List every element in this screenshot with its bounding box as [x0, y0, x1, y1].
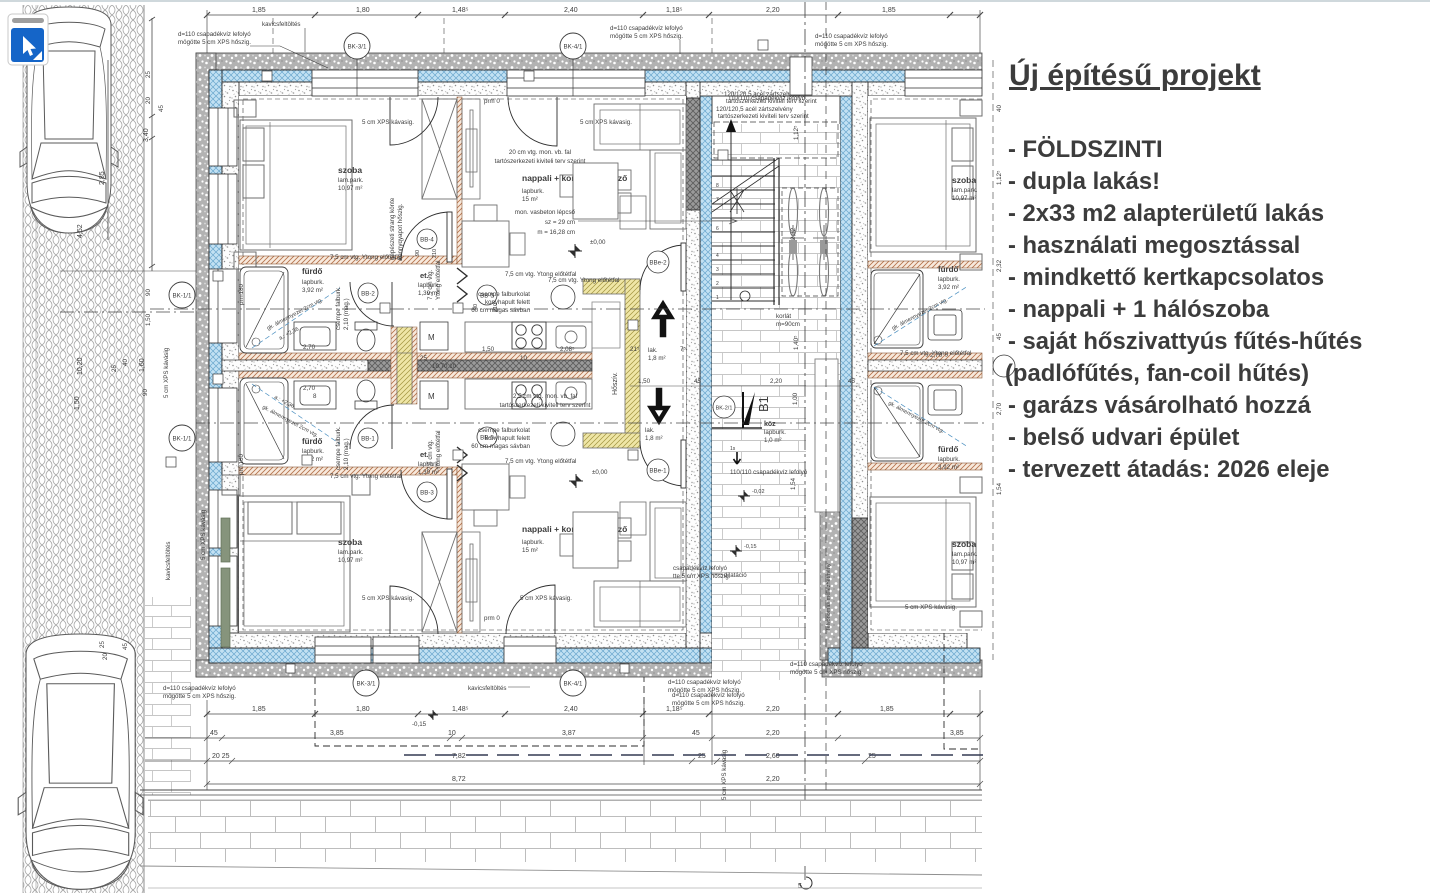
svg-text:fürdő: fürdő	[302, 267, 323, 276]
svg-text:1,60: 1,60	[139, 358, 146, 372]
svg-text:B1: B1	[756, 396, 771, 412]
svg-text:45: 45	[210, 730, 218, 737]
svg-text:6: 6	[716, 226, 719, 232]
svg-text:1,54: 1,54	[996, 482, 1003, 495]
svg-text:4: 4	[716, 253, 719, 259]
svg-text:kavicsfeltöltés: kavicsfeltöltés	[262, 21, 301, 28]
svg-text:szoba: szoba	[952, 539, 976, 549]
svg-text:2,40: 2,40	[564, 7, 578, 14]
svg-text:2,85: 2,85	[99, 171, 106, 185]
svg-text:1,48⁵: 1,48⁵	[452, 706, 469, 713]
svg-text:40: 40	[122, 359, 129, 366]
svg-text:60 cm magas sávban: 60 cm magas sávban	[471, 443, 530, 450]
svg-text:gépészeti strang könte: gépészeti strang könte	[389, 197, 396, 260]
svg-text:- mindkettő kertkapcsolatos: - mindkettő kertkapcsolatos	[1008, 264, 1324, 291]
svg-text:tartószerkezeti kiviteli terv: tartószerkezeti kiviteli terv szerint	[718, 113, 809, 120]
svg-text:lak.: lak.	[645, 427, 655, 434]
svg-text:8,72: 8,72	[452, 776, 466, 783]
svg-text:10: 10	[520, 355, 527, 362]
svg-text:csempe falburk.: csempe falburk.	[335, 286, 342, 330]
svg-text:210: 210	[432, 249, 438, 258]
svg-text:d=110 csapadékvíz lefolyó: d=110 csapadékvíz lefolyó	[178, 31, 251, 38]
svg-text:3,40: 3,40	[143, 128, 150, 142]
svg-text:- belső udvari épület: - belső udvari épület	[1008, 424, 1239, 451]
svg-text:könnyqyapot hőszig.: könnyqyapot hőszig.	[397, 203, 404, 260]
svg-text:konyhapult felett: konyhapult felett	[485, 435, 530, 442]
svg-text:korlát: korlát	[776, 313, 791, 320]
svg-text:lam.park.: lam.park.	[338, 549, 364, 556]
svg-text:BB-3: BB-3	[420, 490, 434, 497]
svg-text:45: 45	[158, 105, 165, 112]
svg-text:5 cm XPS kávasig.: 5 cm XPS kávasig.	[520, 595, 572, 602]
svg-text:1,80: 1,80	[356, 7, 370, 14]
svg-text:1,85: 1,85	[882, 7, 896, 14]
svg-text:1,50: 1,50	[145, 313, 152, 326]
svg-text:1,85: 1,85	[880, 706, 894, 713]
svg-text:90: 90	[145, 289, 152, 296]
svg-text:3,85: 3,85	[950, 730, 964, 737]
svg-text:prm 0: prm 0	[484, 98, 500, 105]
svg-text:lapburk.: lapburk.	[938, 456, 960, 463]
svg-text:10,97 m²: 10,97 m²	[338, 557, 362, 564]
svg-text:BBe-2: BBe-2	[649, 260, 667, 267]
svg-text:m = 16,28 cm: m = 16,28 cm	[537, 229, 575, 236]
svg-text:1s: 1s	[730, 446, 736, 452]
svg-text:7,5 cm vtg. Ytong előtétfal: 7,5 cm vtg. Ytong előtétfal	[900, 350, 971, 357]
svg-text:BK-2/1: BK-2/1	[716, 406, 733, 412]
svg-text:Ytong előtétfal: Ytong előtétfal	[435, 430, 442, 470]
svg-text:fürdő: fürdő	[938, 445, 959, 454]
svg-text:2,70: 2,70	[996, 402, 1003, 415]
svg-text:BBe-1: BBe-1	[649, 468, 667, 475]
svg-text:4,52: 4,52	[77, 224, 84, 238]
svg-text:10 70 10: 10 70 10	[432, 363, 457, 370]
svg-text:5: 5	[798, 883, 802, 890]
svg-text:d=110 csapadékvíz lefolyó: d=110 csapadékvíz lefolyó	[163, 685, 236, 692]
svg-text:5 cm XPS kávasig.: 5 cm XPS kávasig.	[362, 119, 414, 126]
svg-text:2,60: 2,60	[766, 753, 780, 760]
svg-text:csempe falburk.: csempe falburk.	[335, 426, 342, 470]
svg-text:8: 8	[716, 183, 719, 189]
svg-text:7,5 cm vtg.: 7,5 cm vtg.	[427, 439, 434, 470]
svg-text:1,18⁵: 1,18⁵	[666, 7, 683, 14]
svg-text:7,5 cm vtg. Ytong előtétfal: 7,5 cm vtg. Ytong előtétfal	[505, 458, 576, 465]
svg-text:d=110 csapadékvíz lefolyó: d=110 csapadékvíz lefolyó	[610, 25, 683, 32]
svg-text:2,20: 2,20	[766, 730, 780, 737]
svg-text:1,50: 1,50	[74, 396, 81, 410]
svg-text:BK-4/1: BK-4/1	[564, 681, 583, 688]
svg-text:lak.: lak.	[648, 347, 658, 354]
svg-text:lapburk.: lapburk.	[938, 276, 960, 283]
svg-text:- nappali + 1 hálószoba: - nappali + 1 hálószoba	[1008, 296, 1270, 323]
svg-text:köz: köz	[764, 421, 776, 428]
svg-text:csempe falburkolat: csempe falburkolat	[478, 427, 530, 434]
svg-text:szoba: szoba	[952, 175, 976, 185]
svg-text:2,40: 2,40	[564, 706, 578, 713]
svg-text:7,5 cm vtg.: 7,5 cm vtg.	[427, 269, 434, 300]
svg-text:lapburk.: lapburk.	[522, 539, 544, 546]
svg-text:3,85: 3,85	[330, 730, 344, 737]
svg-text:1,80: 1,80	[356, 706, 370, 713]
svg-text:1,00: 1,00	[792, 392, 799, 405]
svg-text:8: 8	[313, 393, 317, 400]
svg-text:prm180: prm180	[238, 283, 245, 305]
svg-text:5 cm XPS kávasig.: 5 cm XPS kávasig.	[362, 595, 414, 602]
svg-text:5 cm XPS kávasig.: 5 cm XPS kávasig.	[580, 119, 632, 126]
svg-text:M: M	[428, 333, 435, 342]
svg-text:lapburk.: lapburk.	[302, 448, 324, 455]
svg-text:1,85: 1,85	[252, 706, 266, 713]
svg-text:2,5 cm vtg. mon. vb. fal: 2,5 cm vtg. mon. vb. fal	[513, 393, 577, 400]
svg-text:±0,00: ±0,00	[592, 469, 608, 476]
svg-text:2,20: 2,20	[766, 776, 780, 783]
svg-text:1,12⁵: 1,12⁵	[996, 170, 1003, 185]
svg-text:1,50: 1,50	[638, 378, 651, 385]
svg-text:5 cm XPS kávásig: 5 cm XPS kávásig	[163, 347, 170, 398]
svg-text:45: 45	[848, 378, 855, 385]
svg-text:BK-3/1: BK-3/1	[348, 44, 367, 51]
svg-text:BB-2: BB-2	[361, 291, 375, 298]
svg-text:- FÖLDSZINTI: - FÖLDSZINTI	[1008, 136, 1163, 163]
svg-text:- dupla lakás!: - dupla lakás!	[1008, 168, 1160, 195]
svg-text:felvonómas mellézhetmény: felvonómas mellézhetmény	[826, 563, 832, 630]
svg-text:45: 45	[122, 643, 129, 650]
svg-text:1: 1	[716, 295, 719, 301]
svg-text:BK-4/1: BK-4/1	[564, 44, 583, 51]
svg-text:25: 25	[868, 753, 876, 760]
svg-text:2,10 (mag.): 2,10 (mag.)	[343, 298, 350, 330]
svg-text:-0,15: -0,15	[412, 721, 427, 728]
svg-text:7⁵: 7⁵	[680, 346, 686, 353]
svg-text:mögötte 5 cm XPS hőszig.: mögötte 5 cm XPS hőszig.	[790, 669, 863, 676]
svg-text:2,32: 2,32	[996, 259, 1003, 272]
svg-text:2: 2	[716, 281, 719, 287]
svg-text:1,8 m²: 1,8 m²	[648, 355, 666, 362]
svg-text:2,10 (mag.): 2,10 (mag.)	[343, 438, 350, 470]
svg-text:1,18⁵: 1,18⁵	[666, 706, 683, 713]
svg-text:60 cm magas sávban: 60 cm magas sávban	[471, 307, 530, 314]
svg-text:BB-4: BB-4	[420, 237, 434, 244]
svg-text:konyhapult felett: konyhapult felett	[485, 299, 530, 306]
svg-text:csempe falburkolat: csempe falburkolat	[478, 291, 530, 298]
svg-text:lam.park.: lam.park.	[952, 551, 978, 558]
svg-text:- 2x33 m2 alapterületű lakás: - 2x33 m2 alapterületű lakás	[1008, 200, 1324, 227]
svg-text:15 m²: 15 m²	[522, 196, 538, 203]
svg-text:2,20: 2,20	[766, 7, 780, 14]
svg-text:M: M	[428, 392, 435, 401]
svg-text:3,87: 3,87	[562, 730, 576, 737]
svg-text:1,54: 1,54	[790, 477, 797, 490]
svg-text:mögötte 5 cm XPS hőszig.: mögötte 5 cm XPS hőszig.	[672, 700, 745, 707]
svg-text:10,97 m²: 10,97 m²	[952, 195, 976, 202]
svg-text:25: 25	[99, 641, 106, 648]
svg-text:tartószerkezeti kiviteli terv: tartószerkezeti kiviteli terv szerint	[495, 158, 586, 165]
svg-text:csapadékvíz lefolyó: csapadékvíz lefolyó	[673, 565, 728, 572]
svg-text:2,20: 2,20	[766, 706, 780, 713]
svg-text:10,97 m²: 10,97 m²	[952, 559, 976, 566]
svg-text:- garázs vásárolható hozzá: - garázs vásárolható hozzá	[1008, 392, 1312, 419]
svg-text:40: 40	[996, 105, 1003, 112]
svg-text:Ytong előtétfal: Ytong előtétfal	[435, 260, 442, 300]
svg-text:2,70: 2,70	[303, 344, 316, 351]
svg-text:tte 5 cm XPS hőszig.: tte 5 cm XPS hőszig.	[673, 573, 731, 580]
svg-text:BK-1/1: BK-1/1	[173, 436, 192, 443]
svg-text:tartószerkezeti kiviteli terv: tartószerkezeti kiviteli terv szerint	[500, 402, 591, 409]
svg-text:20: 20	[145, 97, 152, 104]
svg-text:lapburk.: lapburk.	[522, 188, 544, 195]
svg-text:sz = 29 cm: sz = 29 cm	[545, 219, 575, 226]
svg-text:mögötte 5 cm XPS hőszig.: mögötte 5 cm XPS hőszig.	[163, 693, 236, 700]
svg-text:1,40⁵: 1,40⁵	[793, 335, 800, 350]
svg-text:d=110 csapadékvíz lefolyó: d=110 csapadékvíz lefolyó	[790, 661, 863, 668]
svg-text:1,85: 1,85	[252, 7, 266, 14]
svg-text:-0,02: -0,02	[752, 489, 765, 495]
svg-text:±0,00: ±0,00	[590, 239, 606, 246]
svg-text:3,92 m²: 3,92 m²	[938, 464, 959, 471]
svg-text:20 25: 20 25	[212, 753, 230, 760]
svg-text:21⁵: 21⁵	[630, 346, 640, 353]
svg-text:mögötte 5 cm XPS hőszig.: mögötte 5 cm XPS hőszig.	[815, 41, 888, 48]
svg-text:10,97 m²: 10,97 m²	[338, 185, 362, 192]
svg-text:- saját hőszivattyús fűtés-hűt: - saját hőszivattyús fűtés-hűtés	[1008, 328, 1362, 355]
svg-text:-0,15: -0,15	[744, 544, 757, 550]
svg-text:5 cm XPS kávásig: 5 cm XPS kávásig	[200, 509, 207, 560]
svg-text:2,20: 2,20	[770, 378, 783, 385]
svg-text:Új építésű projekt: Új építésű projekt	[1009, 58, 1261, 92]
svg-text:25: 25	[145, 71, 152, 78]
svg-text:kavicsfeltöltés: kavicsfeltöltés	[165, 541, 172, 580]
svg-text:BK-1/1: BK-1/1	[173, 293, 192, 300]
svg-text:3,92 m²: 3,92 m²	[938, 284, 959, 291]
svg-text:45: 45	[996, 333, 1003, 340]
svg-text:7,5 cm vtg. Ytong előtétfal: 7,5 cm vtg. Ytong előtétfal	[330, 473, 401, 480]
svg-text:25: 25	[698, 753, 706, 760]
svg-text:d=110 csapadékvíz lefolyó: d=110 csapadékvíz lefolyó	[815, 33, 888, 40]
svg-text:mögötte 5 cm XPS hőszig.: mögötte 5 cm XPS hőszig.	[610, 33, 683, 40]
svg-text:15 m²: 15 m²	[522, 547, 538, 554]
svg-text:1,12⁵: 1,12⁵	[793, 125, 800, 140]
svg-text:120/120,5 acél zártszelvény: 120/120,5 acél zártszelvény	[716, 106, 794, 113]
svg-text:45: 45	[694, 378, 701, 385]
svg-text:2,08⁵: 2,08⁵	[560, 346, 575, 353]
svg-text:fürdő: fürdő	[302, 437, 323, 446]
svg-text:prm 0: prm 0	[484, 615, 500, 622]
svg-text:Hőszív.: Hőszív.	[612, 372, 619, 395]
svg-text:45: 45	[692, 730, 700, 737]
svg-text:110/110 csapadékvíz lefolyó: 110/110 csapadékvíz lefolyó	[728, 95, 806, 102]
svg-text:2,32: 2,32	[790, 227, 797, 240]
svg-text:5 cm XPS kávasig.: 5 cm XPS kávasig.	[905, 604, 957, 611]
svg-text:20: 20	[102, 653, 109, 660]
svg-text:- használati megosztással: - használati megosztással	[1008, 232, 1300, 259]
svg-text:lapburk.: lapburk.	[764, 429, 786, 436]
svg-text:1,0 m²: 1,0 m²	[764, 437, 782, 444]
svg-text:fürdő: fürdő	[938, 265, 959, 274]
svg-text:m=90cm: m=90cm	[776, 321, 800, 328]
svg-text:- tervezett átadás: 2026 eleje: - tervezett átadás: 2026 eleje	[1008, 456, 1329, 483]
svg-text:(padlófűtés, fan-coil hűtés): (padlófűtés, fan-coil hűtés)	[1005, 360, 1309, 387]
svg-text:BB-1: BB-1	[361, 436, 375, 443]
svg-text:3: 3	[716, 267, 719, 273]
svg-text:7,5 cm vtg. Ytong előtétfal: 7,5 cm vtg. Ytong előtétfal	[548, 277, 619, 284]
svg-text:90: 90	[415, 250, 421, 256]
svg-text:d=110 csapadékvíz lefolyó: d=110 csapadékvíz lefolyó	[672, 692, 745, 699]
svg-text:7,82: 7,82	[452, 753, 466, 760]
svg-text:20 cm vtg. mon. vb. fal: 20 cm vtg. mon. vb. fal	[509, 149, 571, 156]
svg-text:szoba: szoba	[338, 537, 362, 547]
svg-text:110/110 csapadékvíz lefolyó: 110/110 csapadékvíz lefolyó	[730, 469, 808, 476]
svg-text:3,92 m²: 3,92 m²	[302, 287, 323, 294]
svg-text:kavicsfeltöltés: kavicsfeltöltés	[468, 685, 507, 692]
svg-text:lam.park.: lam.park.	[338, 177, 364, 184]
svg-text:lam.park.: lam.park.	[952, 187, 978, 194]
svg-text:1,50: 1,50	[482, 346, 495, 353]
svg-text:25: 25	[111, 365, 118, 372]
svg-text:mögötte 5 cm XPS hőszig.: mögötte 5 cm XPS hőszig.	[178, 39, 251, 46]
svg-text:10: 10	[448, 730, 456, 737]
svg-text:szoba: szoba	[338, 165, 362, 175]
svg-text:d=110 csapadékvíz lefolyó: d=110 csapadékvíz lefolyó	[668, 679, 741, 686]
svg-text:5 cm XPS kávasig: 5 cm XPS kávasig	[721, 749, 728, 800]
svg-text:1,48⁵: 1,48⁵	[452, 7, 469, 14]
svg-text:25: 25	[420, 355, 427, 362]
svg-text:2,70: 2,70	[303, 385, 316, 392]
svg-text:mon. vasbeton lépcső: mon. vasbeton lépcső	[515, 209, 576, 216]
svg-text:1,8 m²: 1,8 m²	[645, 435, 663, 442]
svg-text:lapburk.: lapburk.	[302, 279, 324, 286]
svg-text:prm180: prm180	[238, 453, 245, 475]
svg-text:BK-3/1: BK-3/1	[357, 681, 376, 688]
svg-text:10,20: 10,20	[77, 357, 84, 375]
svg-text:90: 90	[142, 389, 149, 396]
